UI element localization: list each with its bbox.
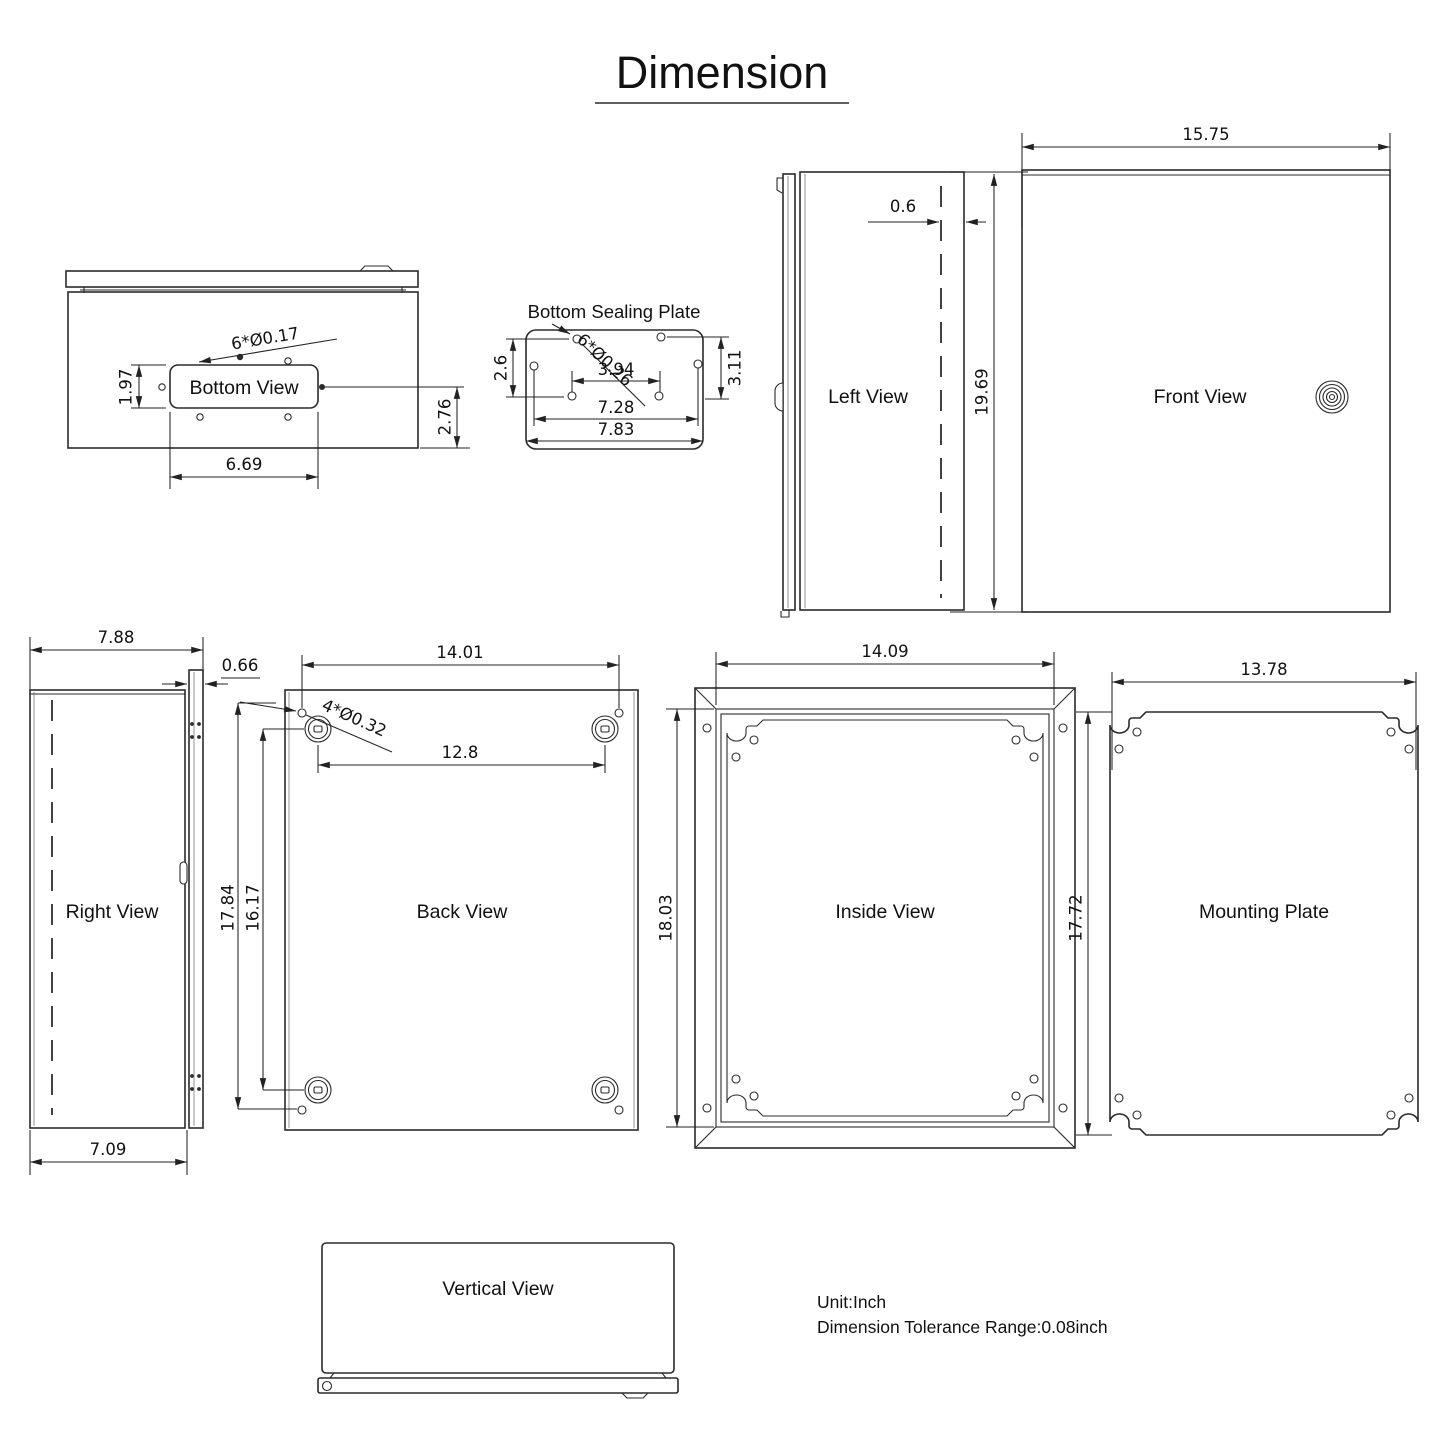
vertical-view-label: Vertical View (442, 1278, 554, 1300)
inside-view-label: Inside View (835, 901, 935, 923)
dimension-drawing: Dimension Bottom View 6*Ø0.17 1.97 (0, 0, 1445, 1445)
svg-text:2.6: 2.6 (492, 355, 511, 381)
svg-text:12.8: 12.8 (442, 743, 479, 762)
svg-text:17.72: 17.72 (1067, 894, 1086, 941)
vertical-view-hinge-end (323, 1382, 332, 1391)
svg-text:18.03: 18.03 (657, 894, 676, 941)
svg-text:14.01: 14.01 (436, 643, 483, 662)
dim-inside-height: 18.03 (657, 709, 715, 1127)
left-view-label: Left View (828, 386, 909, 408)
svg-text:7.83: 7.83 (598, 420, 635, 439)
bottom-view-lid (66, 271, 418, 287)
svg-text:3.11: 3.11 (726, 350, 745, 387)
dim-sealing-inner-width: 3.94 (572, 360, 660, 392)
svg-text:15.75: 15.75 (1182, 125, 1229, 144)
svg-text:7.88: 7.88 (98, 628, 135, 647)
svg-text:0.6: 0.6 (890, 197, 916, 216)
dim-back-top-width: 14.01 (302, 643, 619, 708)
left-view-bottom-hook (781, 610, 789, 617)
front-view: Front View 15.75 19.69 (950, 125, 1390, 612)
svg-text:17.84: 17.84 (219, 884, 238, 931)
front-view-lock-icon (1316, 381, 1348, 413)
mounting-plate-label: Mounting Plate (1199, 901, 1329, 923)
dim-back-height-inner: 16.17 (244, 729, 305, 1090)
right-view-hinges (190, 722, 201, 1091)
mounting-plate-holes (1115, 728, 1413, 1119)
dim-left-door: 0.6 (868, 197, 986, 222)
tolerance-note: Dimension Tolerance Range:0.08inch (817, 1317, 1108, 1337)
dim-sealing-outer-width: 7.83 (526, 420, 703, 441)
back-view-label: Back View (417, 901, 509, 923)
page-title: Dimension (616, 47, 829, 98)
dim-right-bottom-width: 7.09 (30, 1130, 187, 1175)
front-view-label: Front View (1154, 386, 1248, 408)
bottom-view: Bottom View 6*Ø0.17 1.97 6.69 (66, 266, 470, 489)
dim-inside-width: 14.09 (716, 642, 1054, 705)
svg-text:6.69: 6.69 (226, 455, 263, 474)
bottom-sealing-plate: Bottom Sealing Plate 6*Ø0.26 2.6 3.11 (492, 301, 745, 449)
right-view-label: Right View (66, 901, 160, 923)
footer-notes: Unit:Inch Dimension Tolerance Range:0.08… (817, 1292, 1108, 1337)
svg-text:19.69: 19.69 (973, 368, 992, 415)
dim-bottom-holes: 6*Ø0.17 (199, 324, 337, 362)
svg-text:3.94: 3.94 (598, 360, 635, 379)
back-view: 14.01 4*Ø0.32 12.8 17.84 16.17 Back View (219, 643, 639, 1130)
right-view-door-edge (189, 670, 203, 1128)
sealing-plate-title: Bottom Sealing Plate (528, 301, 701, 322)
title-block: Dimension (595, 47, 849, 103)
bottom-view-label: Bottom View (189, 377, 299, 399)
unit-note: Unit:Inch (817, 1292, 886, 1312)
vertical-view-body (322, 1243, 674, 1373)
dim-front-width: 15.75 (1022, 125, 1390, 227)
mounting-plate: 13.78 17.72 Mounting Plate (1067, 660, 1419, 1135)
svg-text:6*Ø0.17: 6*Ø0.17 (230, 324, 301, 354)
svg-text:2.76: 2.76 (436, 399, 455, 436)
svg-text:14.09: 14.09 (861, 642, 908, 661)
vertical-view: Vertical View (318, 1243, 678, 1398)
left-view-door-edge (783, 174, 795, 610)
dim-right-door: 0.66 (162, 656, 260, 684)
left-view: Left View 0.6 (775, 172, 986, 617)
svg-text:1.97: 1.97 (117, 369, 136, 406)
inside-view: 14.09 18.03 Inside View (657, 642, 1076, 1148)
left-view-top-hook (777, 178, 783, 193)
left-view-hinge (775, 383, 783, 411)
dim-front-height: 19.69 (950, 172, 1028, 612)
svg-text:16.17: 16.17 (244, 884, 263, 931)
svg-text:13.78: 13.78 (1240, 660, 1287, 679)
dim-mounting-width: 13.78 (1112, 660, 1416, 770)
dim-bottom-width: 6.69 (170, 412, 318, 489)
dim-bottom-offset: 2.76 (319, 384, 470, 448)
svg-text:7.28: 7.28 (598, 398, 635, 417)
mounting-plate-outline (1110, 712, 1418, 1135)
dimension-drawing-page: Dimension Bottom View 6*Ø0.17 1.97 (0, 0, 1445, 1445)
svg-text:7.09: 7.09 (90, 1140, 127, 1159)
right-view-latch-bump (180, 862, 187, 884)
dim-back-bolt-width: 12.8 (318, 743, 605, 773)
dim-mounting-height: 17.72 (1067, 712, 1113, 1135)
dim-sealing-right-height: 3.11 (667, 337, 745, 399)
svg-text:0.66: 0.66 (222, 656, 259, 675)
vertical-view-base-bar (318, 1378, 678, 1393)
